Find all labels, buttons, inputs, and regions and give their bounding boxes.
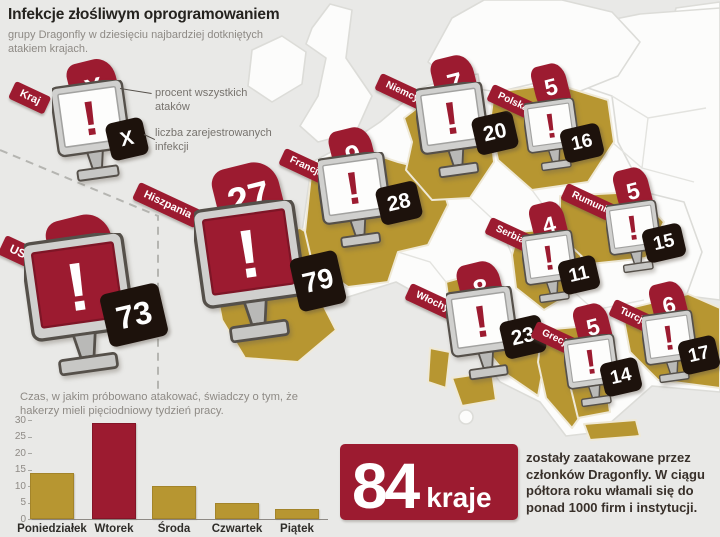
- bar-czwartek: [215, 503, 259, 520]
- monitor-alert-icon-hiszpania: !: [194, 200, 308, 357]
- summary-unit: kraje: [426, 484, 491, 512]
- summary-stat-box: 84 kraje: [340, 444, 518, 520]
- bar-poniedziałek: [30, 473, 74, 519]
- chart-x-axis: [28, 519, 328, 520]
- y-axis-tick-label: 20: [6, 448, 26, 459]
- infographic-root: Infekcje złośliwym oprogramowaniem grupy…: [0, 0, 720, 537]
- y-axis-tick-mark: [28, 453, 32, 454]
- header: Infekcje złośliwym oprogramowaniem grupy…: [8, 6, 308, 56]
- summary-number: 84: [352, 460, 417, 512]
- y-axis-tick-label: 5: [6, 497, 26, 508]
- page-subtitle: grupy Dragonfly w dziesięciu najbardziej…: [8, 28, 268, 56]
- bar-piątek: [275, 509, 319, 519]
- legend-percent-caption: procent wszystkich ataków: [155, 86, 275, 114]
- y-axis-tick-mark: [28, 470, 32, 471]
- y-axis-tick-mark: [28, 437, 32, 438]
- chart-note: Czas, w jakim próbowano atakować, świadc…: [20, 390, 332, 418]
- y-axis-tick-label: 10: [6, 481, 26, 492]
- y-axis-tick-mark: [28, 519, 32, 520]
- y-axis-tick-label: 25: [6, 431, 26, 442]
- page-title: Infekcje złośliwym oprogramowaniem: [8, 6, 308, 24]
- y-axis-tick-mark: [28, 420, 32, 421]
- y-axis-tick-label: 30: [6, 415, 26, 426]
- y-axis-tick-label: 15: [6, 464, 26, 475]
- bar-środa: [152, 486, 196, 519]
- summary-text: zostały zaatakowane przez członków Drago…: [526, 450, 720, 516]
- x-axis-category-label: Piątek: [255, 523, 339, 535]
- bar-wtorek: [92, 423, 136, 519]
- weekday-bar-chart: Czas, w jakim próbowano atakować, świadc…: [6, 388, 338, 536]
